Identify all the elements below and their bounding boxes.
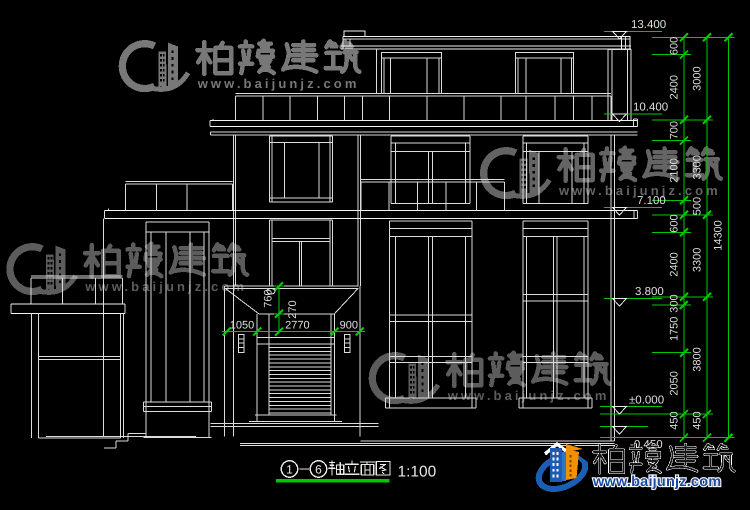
svg-text:1:100: 1:100 <box>398 464 437 481</box>
svg-text:2770: 2770 <box>285 320 309 332</box>
svg-text:3300: 3300 <box>692 155 704 179</box>
svg-text:3.800: 3.800 <box>635 286 664 298</box>
svg-text:270: 270 <box>287 300 299 318</box>
svg-text:450: 450 <box>692 411 704 429</box>
svg-text:1750: 1750 <box>669 317 681 341</box>
svg-text:300: 300 <box>669 294 681 312</box>
svg-text:3800: 3800 <box>692 347 704 371</box>
svg-text:10.400: 10.400 <box>633 102 668 114</box>
svg-text:600: 600 <box>669 214 681 232</box>
svg-text:3000: 3000 <box>692 66 704 90</box>
svg-text:600: 600 <box>669 37 681 55</box>
svg-text:2050: 2050 <box>669 371 681 395</box>
svg-text:www.baijunjz.com: www.baijunjz.com <box>197 76 360 91</box>
svg-text:±0.000: ±0.000 <box>629 395 664 407</box>
svg-text:500: 500 <box>692 197 704 215</box>
svg-text:1: 1 <box>286 463 293 477</box>
svg-text:1050: 1050 <box>230 320 254 332</box>
svg-text:2400: 2400 <box>669 75 681 99</box>
svg-text:13.400: 13.400 <box>631 19 666 31</box>
svg-text:700: 700 <box>669 121 681 139</box>
svg-text:7.100: 7.100 <box>637 195 666 207</box>
svg-text:www.baijunjz.com: www.baijunjz.com <box>592 474 721 490</box>
svg-text:6: 6 <box>315 463 322 477</box>
svg-text:2400: 2400 <box>669 252 681 276</box>
svg-text:14300: 14300 <box>713 220 725 251</box>
svg-text:www.baijunjz.com: www.baijunjz.com <box>447 388 610 403</box>
svg-text:760: 760 <box>263 289 275 307</box>
svg-text:900: 900 <box>340 320 358 332</box>
svg-text:2100: 2100 <box>669 158 681 182</box>
svg-text:450: 450 <box>669 411 681 429</box>
svg-text:3300: 3300 <box>692 248 704 272</box>
